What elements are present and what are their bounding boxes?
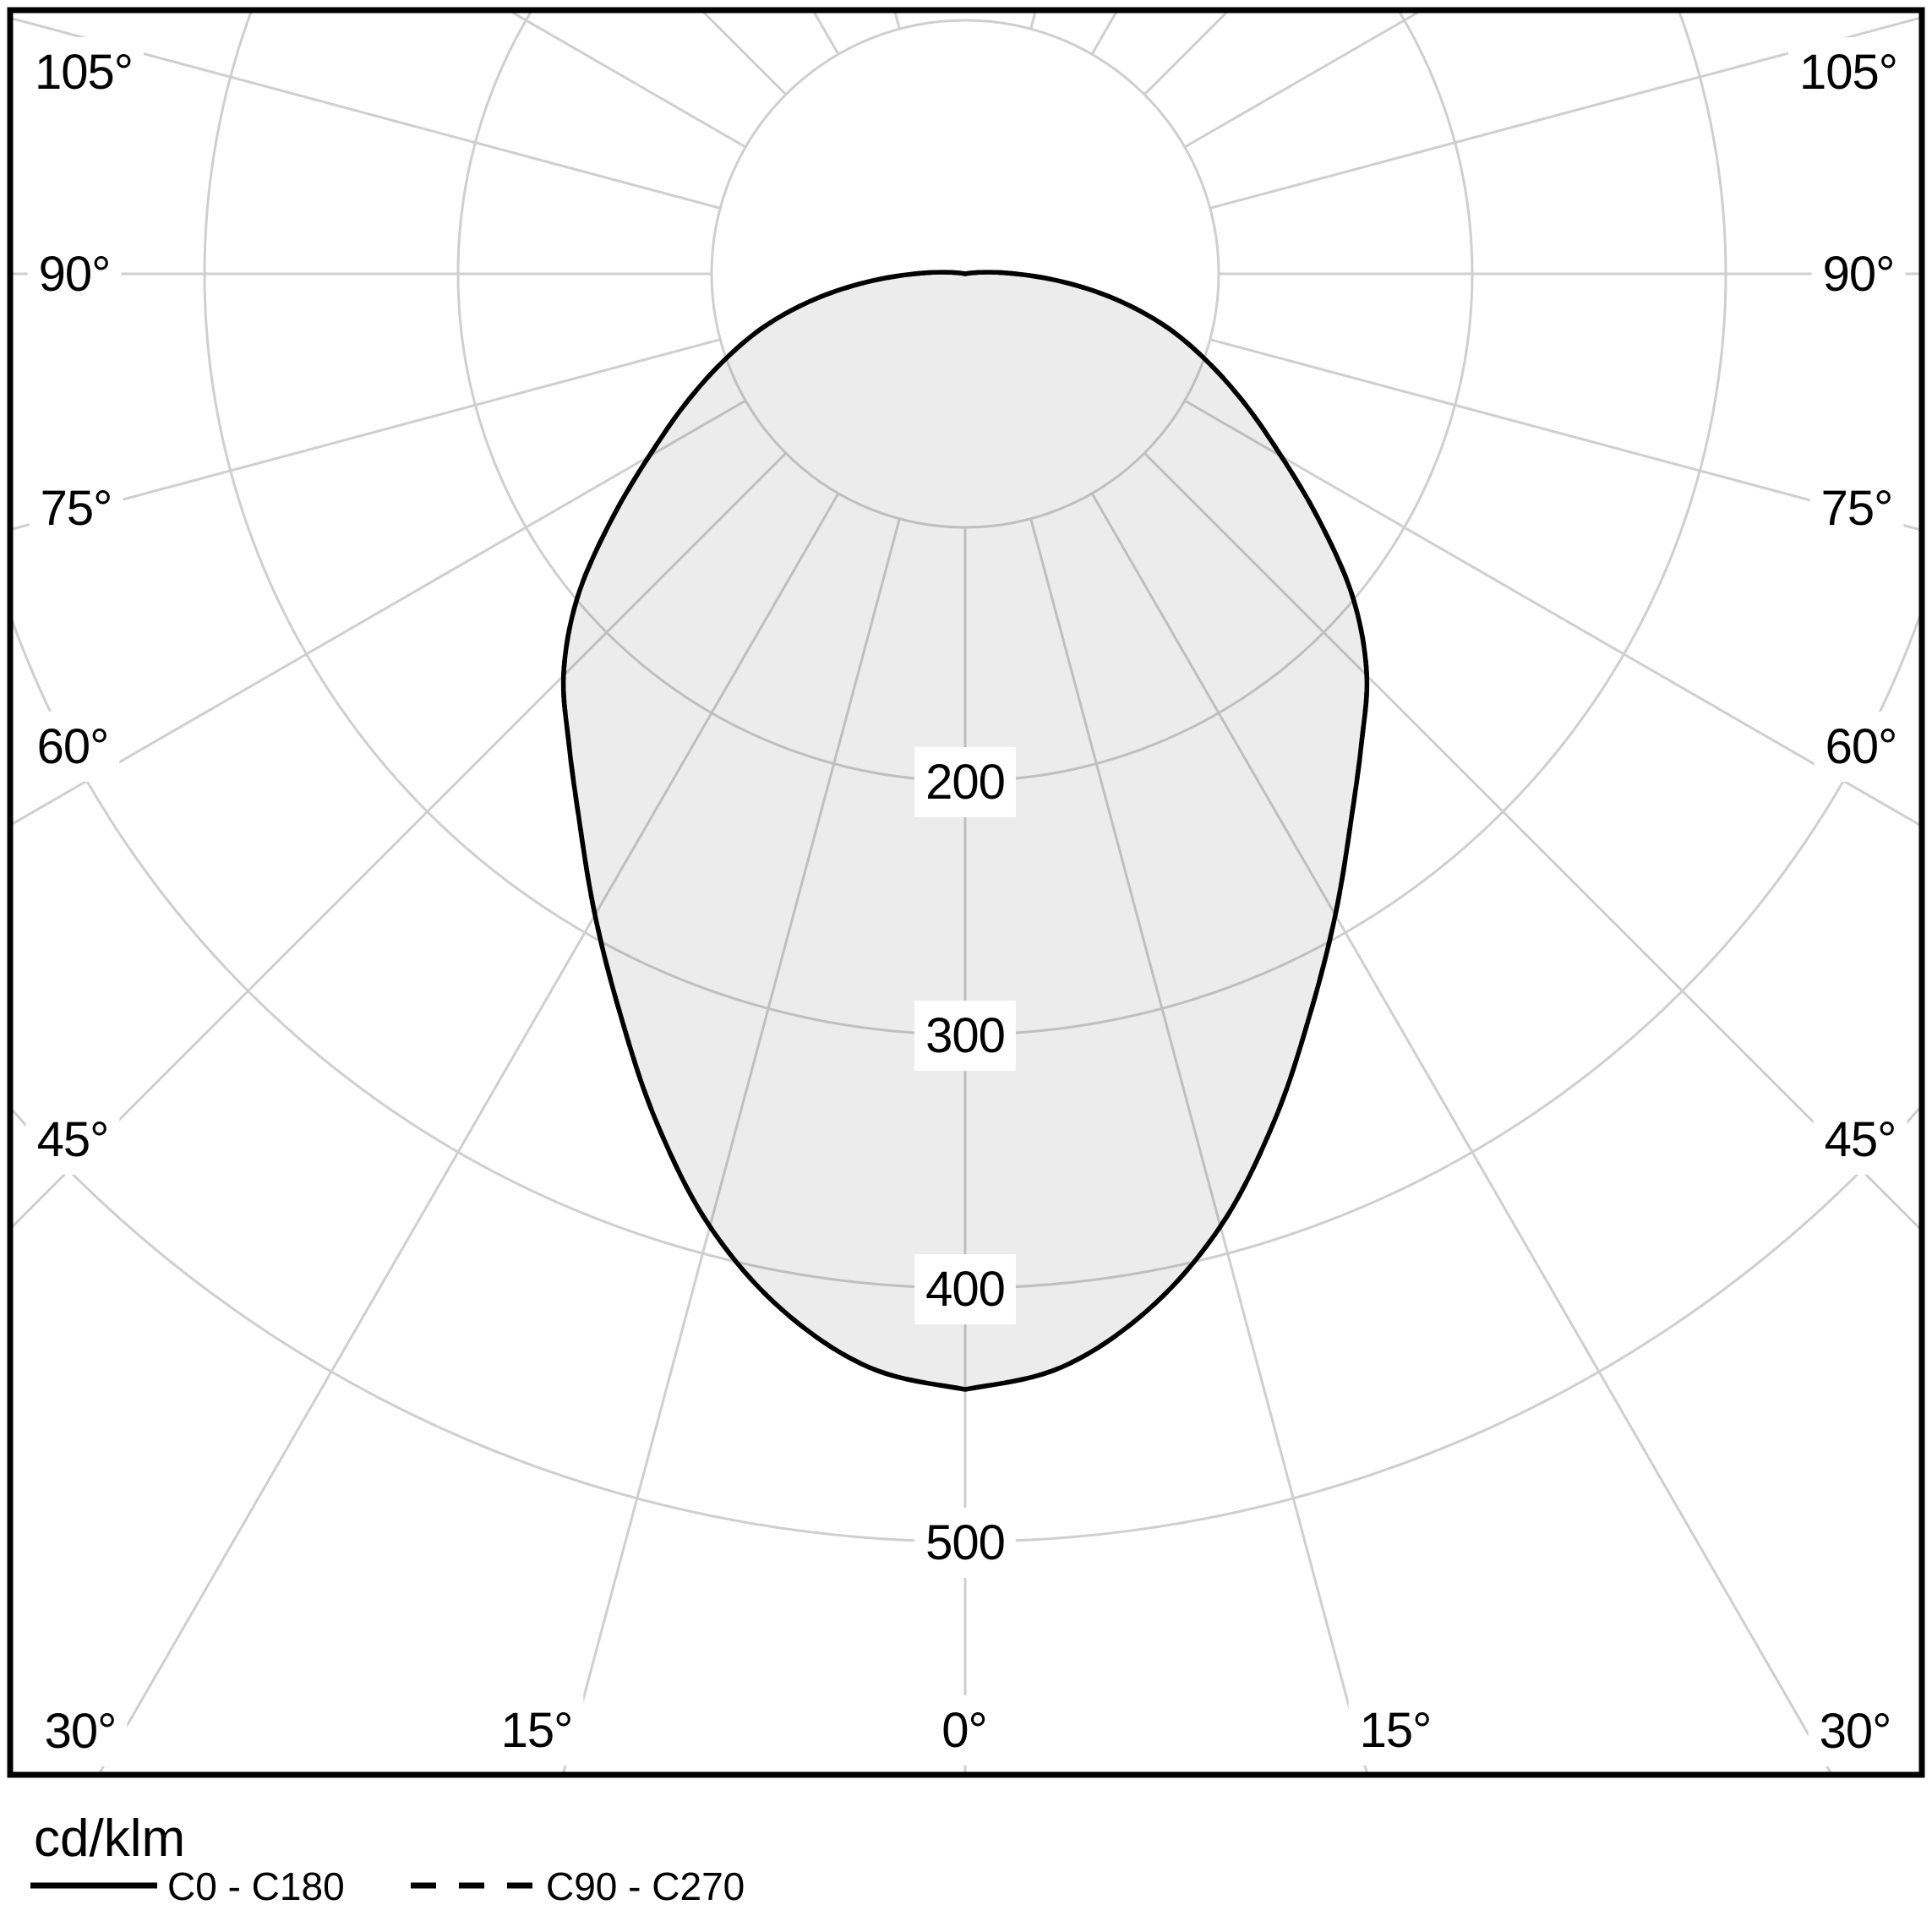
angle-label-60deg-8: 60° bbox=[1826, 719, 1897, 774]
legend-label-c0-c180: C0 - C180 bbox=[167, 1864, 345, 1908]
angle-label-90deg-11: 90° bbox=[39, 247, 111, 302]
angle-label-15deg-2: 15° bbox=[1360, 1703, 1432, 1758]
angle-label-30deg-3: 30° bbox=[45, 1704, 117, 1759]
angle-label-75deg-10: 75° bbox=[1821, 481, 1893, 536]
legend-label-c90-c270: C90 - C270 bbox=[546, 1864, 745, 1908]
grid-spoke-165 bbox=[1031, 0, 1578, 29]
angle-label-105deg-14: 105° bbox=[1799, 45, 1897, 100]
angle-label-0deg-0: 0° bbox=[941, 1703, 986, 1758]
radius-label-500: 500 bbox=[925, 1515, 1005, 1570]
angle-label-45deg-5: 45° bbox=[37, 1112, 109, 1167]
units-label: cd/klm bbox=[34, 1809, 185, 1868]
grid-spoke--165 bbox=[352, 0, 899, 29]
polar-photometric-chart: 2003004005000°15°15°30°30°45°45°60°60°75… bbox=[0, 0, 1932, 1932]
radius-label-300: 300 bbox=[925, 1008, 1005, 1063]
angle-label-15deg-1: 15° bbox=[501, 1703, 573, 1758]
angle-label-105deg-13: 105° bbox=[35, 45, 133, 100]
beam-fill-area bbox=[564, 272, 1367, 1389]
photometric-diagram-page: 2003004005000°15°15°30°30°45°45°60°60°75… bbox=[0, 0, 1932, 1932]
radius-label-400: 400 bbox=[925, 1262, 1005, 1317]
angle-label-90deg-12: 90° bbox=[1823, 247, 1895, 302]
intensity-curves bbox=[564, 272, 1367, 1389]
radius-label-200: 200 bbox=[925, 755, 1005, 810]
angle-label-60deg-7: 60° bbox=[37, 719, 109, 774]
legend: cd/klm C0 - C180 C90 - C270 bbox=[30, 1809, 745, 1908]
angle-label-30deg-4: 30° bbox=[1820, 1704, 1891, 1759]
angle-label-75deg-9: 75° bbox=[41, 481, 112, 536]
angle-label-45deg-6: 45° bbox=[1825, 1112, 1897, 1167]
